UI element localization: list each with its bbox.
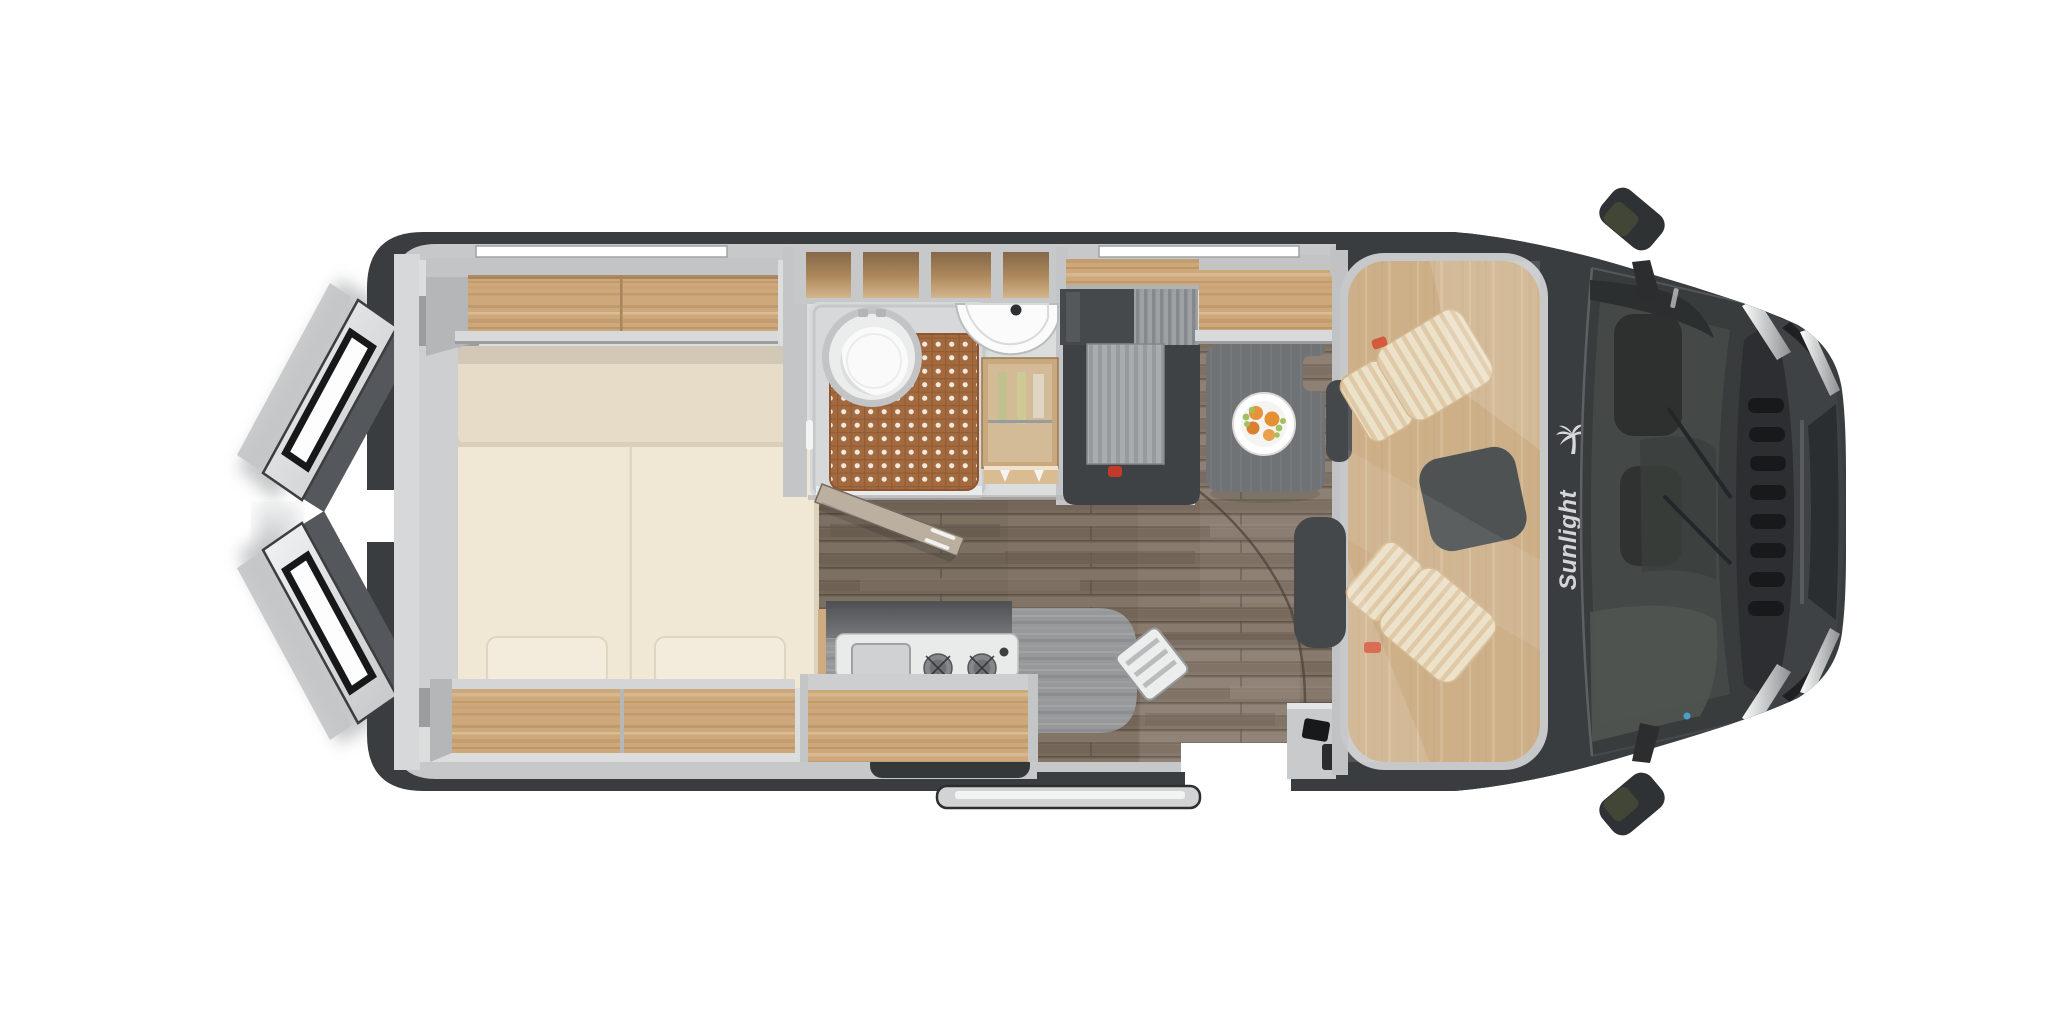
svg-text:Sunlight: Sunlight — [1555, 490, 1582, 590]
